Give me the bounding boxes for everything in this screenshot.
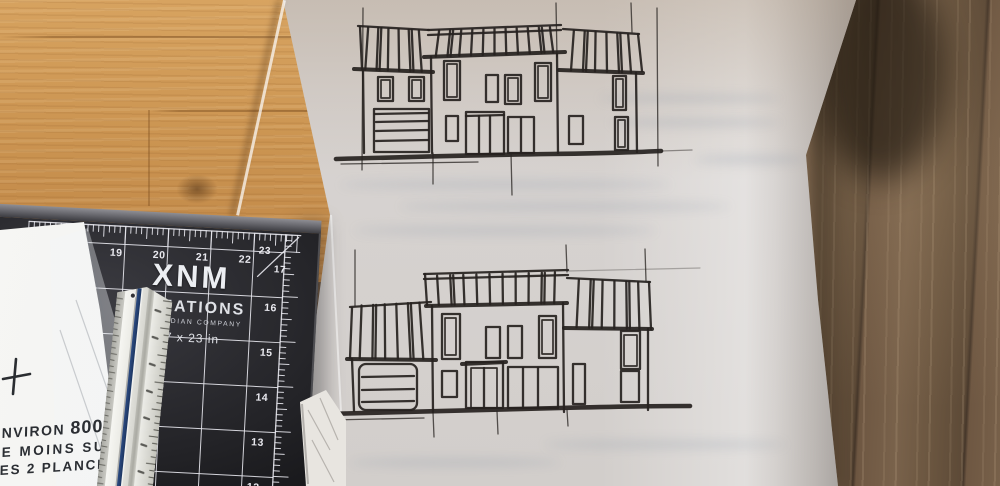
photo-scene: 19 20 21 22 23 17 16 15 14 13 12 XNM CRE… <box>0 0 1000 486</box>
note-text: NVIRON <box>2 421 66 441</box>
plus-mark <box>0 356 34 398</box>
